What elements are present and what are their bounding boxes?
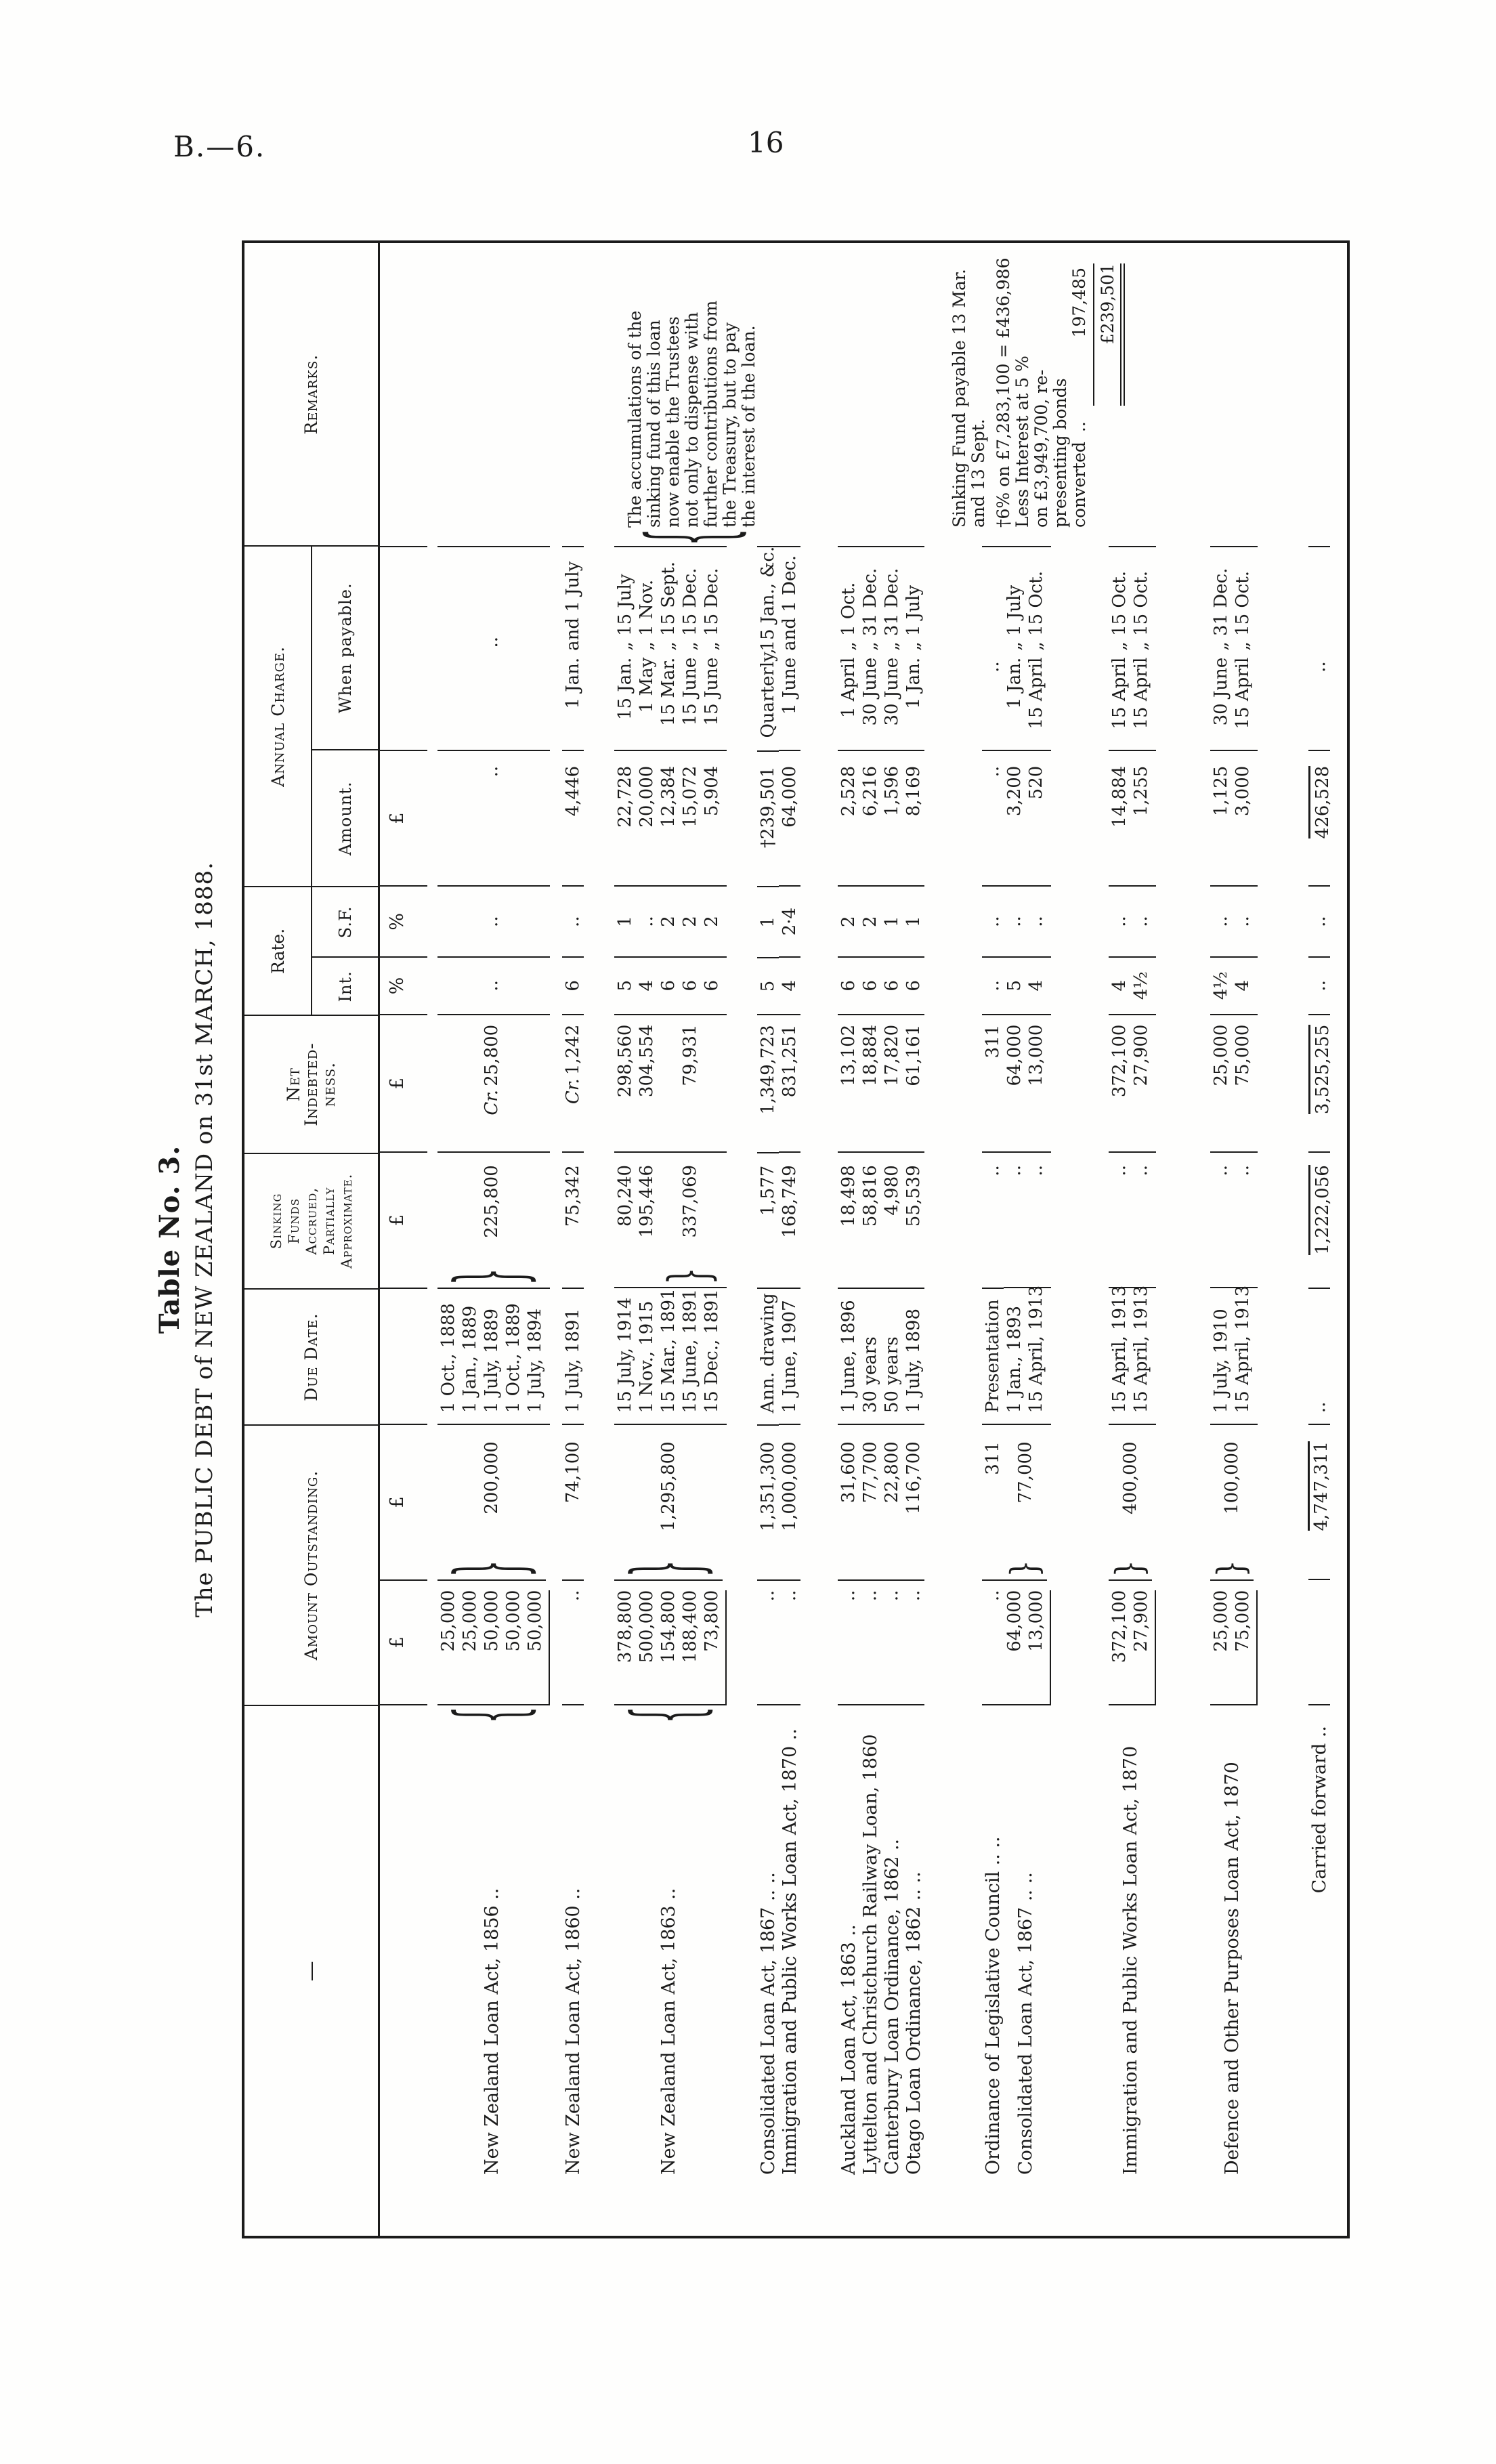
due-date-cell: 15 April, 191315 April, 1913 — [1109, 1288, 1156, 1425]
remarks-cell — [982, 243, 1004, 547]
when-payable-entry: 15 Mar.„ 15 Sept. — [658, 547, 679, 738]
net-indebtedness-value: 61,161 — [903, 1025, 924, 1151]
rate-int-value: 4 — [779, 958, 800, 1014]
due-date-cell: .. — [1308, 1289, 1330, 1425]
rate-sf-value: 2 — [838, 887, 859, 956]
loan-name: Immigration and Public Works Loan Act, 1… — [1120, 1746, 1141, 2175]
when-payable-entry: 15 April„ 15 Oct. — [1109, 547, 1130, 738]
amount-outstanding-total: 31,600 — [838, 1441, 859, 1503]
sinking-fund-value: 58,816 — [859, 1165, 881, 1287]
loan-name-cell: Lyttelton and Christchurch Railway Loan,… — [859, 1705, 881, 2236]
when-payable-first: 15 June — [701, 658, 723, 738]
brace-right-icon: } — [1214, 1560, 1250, 1577]
rate-sf-value: .. — [636, 887, 658, 956]
rate-sf-value: .. — [1109, 887, 1130, 956]
sinking-fund-value: .. — [982, 1165, 1004, 1287]
annual-amount-value: 8,169 — [903, 766, 924, 885]
due-date: 1 June, 1896 — [838, 1289, 859, 1413]
rate-sf-value: 2·4 — [779, 887, 800, 956]
itemised-amount: 50,000 — [503, 1590, 524, 1705]
group-sum-rule — [1155, 1590, 1156, 1704]
annual-amount-cell: 426,528 — [1308, 751, 1330, 887]
loan-name: Canterbury Loan Ordinance, 1862 .. — [882, 1839, 903, 2175]
due-date-cell: Presentation — [982, 1289, 1004, 1425]
when-payable-entry: 15 April„ 15 Oct. — [1130, 547, 1152, 738]
rate-int-cell: 4½4 — [1210, 958, 1258, 1015]
due-date: Presentation — [982, 1289, 1004, 1413]
remark-sum-label: converted — [1070, 442, 1089, 528]
sinking-fund-value: 18,498 — [838, 1165, 859, 1287]
itemised-amount: .. — [757, 1590, 779, 1704]
itemised-amount: 188,400 — [679, 1590, 701, 1704]
amount-outstanding-total-cell: 200,000} — [437, 1425, 546, 1580]
loan-name-cell: Defence and Other Purposes Loan Act, 187… — [1210, 1705, 1254, 2236]
due-date: 15 Dec., 1891 — [701, 1288, 723, 1413]
remark-line: the interest of the loan. — [740, 247, 758, 528]
loan-name-cell: Carried forward .. — [1308, 1705, 1330, 2236]
net-indebtedness-value: 831,251 — [779, 1025, 800, 1151]
due-date: 1 July, 1889 — [481, 1289, 503, 1413]
loan-name: Lyttelton and Christchurch Railway Loan,… — [860, 1734, 881, 2175]
net-indebtedness-cell: 18,884 — [859, 1015, 881, 1153]
net-indebtedness-cell: 61,161 — [903, 1015, 924, 1153]
itemised-amounts-cell: 25,00025,00050,00050,00050,000 — [437, 1581, 550, 1706]
when-payable-first: 30 June — [881, 658, 903, 738]
header-annual-charge: Annual Charge. — [244, 547, 312, 886]
annual-amount-value: 3,000 — [1232, 766, 1254, 885]
amount-outstanding-total: 1,000,000 — [779, 1441, 800, 1531]
loan-row: Carried forward ..4,747,311..1,222,0563,… — [1308, 243, 1330, 2236]
when-payable-entry: Quarterly,15 Jan., &c. — [757, 547, 779, 738]
rate-int-cell: .. — [437, 958, 550, 1015]
rate-sf-value: .. — [1308, 887, 1330, 956]
loan-name: Otago Loan Ordinance, 1862 .. .. — [903, 1871, 924, 2175]
when-payable-cell: 1 Jan.„ 1 July — [903, 547, 924, 751]
header-rate-group: Rate. Int. S.F. — [244, 887, 378, 1016]
due-date: 1 July, 1891 — [562, 1289, 584, 1413]
loan-name-cell: Consolidated Loan Act, 1867 .. .. — [1004, 1705, 1047, 2236]
net-indebtedness-value: 18,884 — [859, 1025, 881, 1151]
annual-amount-value: 22,728 — [614, 766, 636, 885]
when-payable-second: 15 Jan., &c. — [757, 547, 779, 652]
when-payable-second: „ 15 July — [614, 574, 636, 650]
unit-total-pound: £ — [380, 1425, 427, 1580]
amount-outstanding-total-cell: 1,351,300 — [757, 1426, 779, 1581]
net-indebtedness-value: 64,000 — [1004, 1025, 1025, 1151]
itemised-amount: 25,000 — [437, 1590, 459, 1705]
group-sum-rule — [1050, 1590, 1051, 1704]
net-indebtedness-value: 75,000 — [1232, 1025, 1254, 1151]
sinking-funds-cell: 75,342 — [562, 1153, 584, 1288]
sinking-funds-cell: 225,800} — [437, 1153, 550, 1288]
loan-name: New Zealand Loan Act, 1856 .. — [482, 1888, 503, 2175]
itemised-amount: 25,000 — [459, 1590, 481, 1705]
annual-amount-cell: 22,72820,00012,38415,0725,904 — [614, 751, 727, 887]
when-payable-first: 15 Mar. — [658, 658, 679, 738]
itemised-amounts-cell: 372,10027,900 — [1109, 1581, 1156, 1705]
loan-name-cell: Immigration and Public Works Loan Act, 1… — [1109, 1705, 1152, 2236]
annual-amount-value: 14,884 — [1109, 766, 1130, 885]
rate-int-value: 4 — [636, 958, 658, 1014]
itemised-amount: 25,000 — [1210, 1590, 1232, 1704]
itemised-amounts-cell: .. — [838, 1581, 859, 1706]
when-payable-second: and 1 July — [562, 561, 584, 651]
sinking-funds-cell: .... — [1004, 1153, 1051, 1288]
remarks-cell — [838, 243, 859, 547]
rate-sf-value: 2 — [679, 887, 701, 956]
rate-sf-value: .. — [1130, 887, 1152, 956]
sinking-funds-cell: 1,577 — [757, 1153, 779, 1289]
rate-sf-cell: .... — [1210, 887, 1258, 958]
sinking-fund-value: 168,749 — [779, 1165, 800, 1287]
amount-outstanding-total: 200,000 — [482, 1441, 502, 1514]
annual-amount-value: 20,000 — [636, 766, 658, 885]
rate-int-cell: 6 — [903, 958, 924, 1015]
remark-sum-line: converted..197,485 — [1070, 247, 1089, 528]
rate-int-value: 4 — [1025, 958, 1047, 1014]
when-payable-cell: 1 Jan.and 1 July — [562, 547, 584, 751]
itemised-amount: .. — [982, 1590, 1004, 1705]
rate-int-cell: 6 — [859, 958, 881, 1015]
group-sum-rule — [1256, 1590, 1258, 1704]
amount-outstanding-total-cell: 100,000} — [1210, 1425, 1254, 1580]
amount-outstanding-total-cell: 31,600 — [838, 1425, 859, 1580]
header-annual-charge-group: Annual Charge. Amount. When payable. — [244, 547, 378, 887]
when-payable-entry: 15 April„ 15 Oct. — [1232, 547, 1254, 738]
rate-sf-cell: 1..222 — [614, 887, 727, 958]
sinking-funds-cell: 55,539 — [903, 1153, 924, 1288]
sinking-fund-group-value: 225,800} — [437, 1165, 546, 1287]
itemised-amounts-cell: .. — [562, 1581, 584, 1706]
net-indebtedness-value: 372,100 — [1109, 1025, 1130, 1151]
rate-int-cell: 54666 — [614, 958, 727, 1015]
sinking-funds-cell: 80,240195,446337,069} — [614, 1153, 727, 1288]
rate-int-cell: .. — [982, 958, 1004, 1015]
sinking-funds-cell: 168,749 — [779, 1153, 800, 1288]
itemised-amount: .. — [881, 1590, 903, 1705]
loan-name: Consolidated Loan Act, 1867 .. .. — [758, 1872, 779, 2175]
brace-left-icon: { — [622, 1707, 714, 1724]
loan-name: Auckland Loan Act, 1863 .. — [838, 1924, 859, 2175]
when-payable-cell: 30 June„ 31 Dec. — [859, 547, 881, 751]
brace-right-icon: } — [662, 1268, 717, 1285]
when-payable-second: „ 15 Oct. — [1109, 571, 1130, 651]
due-date: 1 July, 1910 — [1210, 1288, 1232, 1413]
itemised-amounts-cell: 378,800500,000154,800188,40073,800 — [614, 1581, 727, 1705]
unit-sinking-pound: £ — [380, 1153, 427, 1288]
when-payable-cell: 30 June„ 31 Dec. — [881, 547, 903, 751]
remarks-cell — [903, 243, 924, 547]
rate-int-cell: 6 — [838, 958, 859, 1015]
sinking-fund-value: 195,446 — [636, 1165, 658, 1287]
when-payable-cell: 15 Jan.„ 15 July1 May„ 1 Nov.15 Mar.„ 15… — [614, 547, 727, 751]
sinking-fund-group-value: 337,069} — [658, 1165, 723, 1287]
loan-row: Otago Loan Ordinance, 1862 .. ....116,70… — [903, 243, 924, 2236]
when-payable-entry: 1 Jan.„ 1 July — [1004, 547, 1025, 738]
rate-sf-cell: 2 — [838, 887, 859, 958]
rate-sf-value: 2 — [658, 887, 679, 956]
group-sum-rule — [725, 1590, 727, 1704]
net-indebtedness-cell: 1,349,723 — [757, 1015, 779, 1153]
header-rate: Rate. — [244, 887, 312, 1015]
loan-name-cell: New Zealand Loan Act, 1863 ..{ — [614, 1705, 723, 2236]
net-indebtedness-group-value: 79,931 — [658, 1025, 723, 1151]
remarks-cell — [1109, 243, 1156, 547]
due-date: 1 Jan., 1889 — [459, 1289, 481, 1413]
net-indebtedness-cell: 64,00013,000 — [1004, 1015, 1051, 1153]
brace-left-icon: { — [446, 1706, 538, 1723]
when-payable-entry: 1 April„ 1 Oct. — [838, 547, 859, 738]
itemised-amount: 378,800 — [614, 1590, 636, 1704]
when-payable-second: „ 1 Oct. — [838, 582, 859, 651]
header-name-column: — — [244, 1706, 378, 2236]
rate-sf-value: 2 — [701, 887, 723, 956]
when-payable-entry: 30 June„ 31 Dec. — [859, 547, 881, 738]
rate-sf-value: 1 — [614, 887, 636, 956]
when-payable-second: „ 31 Dec. — [881, 568, 903, 651]
when-payable-first: 1 Jan. — [1004, 658, 1025, 738]
rate-int-value: 6 — [562, 958, 584, 1014]
amount-outstanding-total-cell: 77,700 — [859, 1425, 881, 1580]
loan-name-cell: Consolidated Loan Act, 1867 .. .. — [757, 1705, 779, 2236]
header-net-indebtedness: Net Indebted- ness. — [244, 1016, 378, 1153]
itemised-amount: 13,000 — [1025, 1590, 1047, 1704]
rate-int-value: 4 — [1232, 958, 1254, 1014]
rate-int-value: 6 — [838, 958, 859, 1014]
amount-outstanding-total: 4,747,311 — [1308, 1441, 1331, 1531]
when-payable-entry: 15 Jan.„ 15 July — [614, 547, 636, 738]
annual-amount-value: .. — [982, 766, 1004, 885]
due-date: 1 June, 1907 — [779, 1289, 800, 1413]
annual-amount-value: 520 — [1025, 766, 1047, 885]
itemised-amount: .. — [562, 1590, 584, 1705]
itemised-amounts-cell: .. — [779, 1581, 800, 1706]
when-payable-second: and 1 Dec. — [779, 555, 800, 651]
loan-row: Ordinance of Legislative Council .. ....… — [982, 243, 1004, 2236]
annual-amount-value: 15,072 — [679, 766, 701, 885]
loan-row: Immigration and Public Works Loan Act, 1… — [1109, 243, 1156, 2236]
remarks-cell — [881, 243, 903, 547]
rotated-table-region: Table No. 3. The PUBLIC DEBT of NEW ZEAL… — [154, 240, 1350, 2238]
rate-int-value: 4½ — [1210, 958, 1232, 1014]
net-indebtedness-cell: 3,525,255 — [1308, 1015, 1330, 1153]
annual-amount-cell: .. — [982, 751, 1004, 887]
rate-int-cell: 54 — [1004, 958, 1051, 1015]
when-payable-second: „ 15 Oct. — [1025, 571, 1047, 651]
itemised-amounts-cell: .. — [859, 1581, 881, 1706]
rate-int-value: 5 — [1004, 958, 1025, 1014]
loan-row: New Zealand Loan Act, 1860 ....74,1001 J… — [562, 243, 584, 2236]
rate-int-value: 6 — [658, 958, 679, 1014]
table-subtitle: The PUBLIC DEBT of NEW ZEALAND on 31st M… — [191, 240, 218, 2238]
net-indebtedness-value: 1,349,723 — [757, 1025, 779, 1151]
itemised-amounts-cell: .. — [881, 1581, 903, 1706]
when-payable-second: „ 1 July — [903, 585, 924, 651]
sinking-fund-value: 55,539 — [903, 1165, 924, 1287]
when-payable-first: 15 April — [1109, 658, 1130, 738]
sinking-fund-value: .. — [1130, 1165, 1152, 1287]
rate-sf-cell: .... — [1004, 887, 1051, 958]
when-payable-entry: 1 Juneand 1 Dec. — [779, 547, 800, 738]
itemised-amounts-cell: .. — [903, 1581, 924, 1706]
due-date: 1 July, 1894 — [524, 1289, 546, 1413]
when-payable-first: 1 Jan. — [903, 658, 924, 738]
header-rate-int: Int. — [312, 958, 378, 1015]
amount-outstanding-total-cell: 1,295,800} — [614, 1425, 723, 1580]
due-date-cell: 1 Oct., 18881 Jan., 18891 July, 18891 Oc… — [437, 1289, 550, 1425]
page-number: 16 — [748, 126, 784, 159]
unit-itemised-pound: £ — [380, 1581, 427, 1706]
due-date: 15 Mar., 1891 — [658, 1288, 679, 1413]
itemised-amount: 154,800 — [658, 1590, 679, 1704]
when-payable-first: 15 April — [1025, 658, 1047, 738]
sinking-funds-cell: 58,816 — [859, 1153, 881, 1288]
rate-sf-value: .. — [562, 887, 584, 956]
rate-sf-value: .. — [437, 887, 546, 956]
amount-outstanding-total-cell: 4,747,311 — [1308, 1425, 1330, 1580]
annual-amount-value: 5,904 — [701, 766, 723, 885]
amount-outstanding-total: 74,100 — [563, 1441, 583, 1503]
when-payable-cell: 1 Jan.„ 1 July15 April„ 15 Oct. — [1004, 547, 1051, 751]
remark-line: Sinking Fund payable 13 Mar. — [950, 247, 969, 528]
rate-sf-cell: .. — [982, 887, 1004, 958]
when-payable-entry: 30 June„ 31 Dec. — [1210, 547, 1232, 738]
due-date: 15 July, 1914 — [614, 1288, 636, 1413]
loan-name-cell: New Zealand Loan Act, 1860 .. — [562, 1705, 584, 2236]
rate-sf-cell: 2 — [859, 887, 881, 958]
sinking-fund-value: .. — [1109, 1165, 1130, 1287]
itemised-amount: 50,000 — [481, 1590, 503, 1705]
table-header-row: — Amount Outstanding. Due Date. Sinking … — [244, 243, 380, 2236]
when-payable-entry: 1 Jan.and 1 July — [562, 547, 584, 738]
when-payable-entry: 15 June„ 15 Dec. — [679, 547, 701, 738]
annual-amount-value: 3,200 — [1004, 766, 1025, 885]
net-indebtedness-value: 311 — [982, 1025, 1004, 1151]
rate-sf-value: 1 — [881, 887, 903, 956]
loan-row: New Zealand Loan Act, 1863 ..{378,800500… — [614, 243, 727, 2236]
rate-sf-value: .. — [1004, 887, 1025, 956]
when-payable-first: 1 June — [779, 658, 800, 738]
due-date: 1 Oct., 1889 — [503, 1289, 524, 1413]
annual-amount-cell: 4,446 — [562, 751, 584, 887]
due-date-cell: 30 years — [859, 1289, 881, 1425]
rate-int-value: 6 — [859, 958, 881, 1014]
rate-int-value: 6 — [679, 958, 701, 1014]
when-payable-entry: .. — [437, 547, 546, 738]
when-payable-entry: 30 June„ 31 Dec. — [881, 547, 903, 738]
header-sinking-funds: Sinking Funds Accrued, Partially Approxi… — [244, 1154, 378, 1290]
sinking-fund-value: .. — [1232, 1165, 1254, 1287]
remarks-cell — [437, 243, 550, 547]
rate-sf-cell: 2·4 — [779, 887, 800, 958]
when-payable-cell: Quarterly,15 Jan., &c. — [757, 547, 779, 752]
header-remarks: Remarks. — [244, 243, 378, 547]
header-rate-sf: S.F. — [312, 887, 378, 958]
header-due-date: Due Date. — [244, 1290, 378, 1426]
rate-sf-cell: .. — [437, 887, 550, 958]
rate-sf-cell: 1 — [757, 887, 779, 958]
due-date-cell: 1 June, 1896 — [838, 1289, 859, 1425]
sinking-fund-value: 4,980 — [881, 1165, 903, 1287]
due-date-cell: Ann. drawing — [757, 1289, 779, 1425]
annual-amount-value: †239,501 — [757, 767, 779, 886]
due-date-cell: 1 June, 1907 — [779, 1289, 800, 1425]
annual-amount-value: 1,255 — [1130, 766, 1152, 885]
remarks-cell — [614, 243, 727, 547]
loan-row: Canterbury Loan Ordinance, 1862 ....22,8… — [881, 243, 903, 2236]
when-payable-first: 15 Jan. — [614, 658, 636, 738]
when-payable-first: 1 April — [838, 658, 859, 738]
itemised-amounts-cell: 25,00075,000 — [1210, 1581, 1258, 1705]
rate-int-value: 4½ — [1130, 958, 1152, 1014]
annual-amount-value: 426,528 — [1308, 766, 1333, 839]
annual-amount-cell: †239,501 — [757, 752, 779, 887]
when-payable-second: „ 15 Sept. — [658, 561, 679, 651]
due-date-cell: 1 Jan., 189315 April, 1913 — [1004, 1288, 1051, 1425]
sinking-fund-value: .. — [1210, 1165, 1232, 1287]
itemised-amount: 500,000 — [636, 1590, 658, 1704]
annual-amount-value: 6,216 — [859, 766, 881, 885]
loan-name-cell: Immigration and Public Works Loan Act, 1… — [779, 1705, 800, 2236]
loan-name-cell: Canterbury Loan Ordinance, 1862 .. — [881, 1705, 903, 2236]
due-date-cell: 1 July, 1891 — [562, 1289, 584, 1425]
amount-outstanding-total: 100,000 — [1222, 1441, 1242, 1514]
itemised-amounts-cell: .. — [757, 1581, 779, 1705]
annual-amount-value: 2,528 — [838, 766, 859, 885]
net-indebtedness-value: 13,000 — [1025, 1025, 1047, 1151]
due-date: Ann. drawing — [757, 1289, 779, 1413]
amount-outstanding-total: 1,351,300 — [758, 1442, 778, 1531]
when-payable-first: 30 June — [859, 658, 881, 738]
rate-int-value: .. — [982, 958, 1004, 1014]
when-payable-entry: 1 May„ 1 Nov. — [636, 547, 658, 738]
rate-int-value: 5 — [614, 958, 636, 1014]
amount-outstanding-total: 77,700 — [860, 1441, 880, 1503]
rate-sf-cell: 1 — [881, 887, 903, 958]
loan-name: Consolidated Loan Act, 1867 .. .. — [1015, 1872, 1036, 2175]
annual-amount-value: 1,125 — [1210, 766, 1232, 885]
sinking-fund-value: 1,222,056 — [1308, 1165, 1333, 1254]
table-body: {The accumulations of thesinking fund of… — [437, 243, 1357, 2236]
sinking-fund-value: 1,577 — [757, 1166, 779, 1288]
rate-int-cell: 5 — [757, 958, 779, 1016]
when-payable-second: „ 15 Oct. — [1130, 571, 1152, 651]
amount-outstanding-total-cell: 311 — [982, 1425, 1004, 1580]
unit-amount-pound: £ — [380, 751, 427, 887]
net-indebtedness-cell: 311 — [982, 1015, 1004, 1153]
itemised-amounts-cell: 64,00013,000 — [1004, 1581, 1051, 1705]
table-number-title: Table No. 3. — [154, 240, 186, 2238]
amt-line: 426,528 — [1308, 766, 1330, 885]
loan-row: Lyttelton and Christchurch Railway Loan,… — [859, 243, 881, 2236]
unit-sf-percent: % — [380, 887, 427, 958]
due-date: 30 years — [859, 1289, 881, 1413]
amount-outstanding-total-cell: 74,100 — [562, 1425, 584, 1580]
rate-int-cell: .. — [1308, 958, 1330, 1015]
itemised-amount: 372,100 — [1109, 1590, 1130, 1704]
net-indebtedness-cell: 25,00075,000 — [1210, 1015, 1258, 1153]
annual-amount-value: 12,384 — [658, 766, 679, 885]
amount-outstanding-total-cell: 77,000} — [1004, 1425, 1047, 1580]
sinking-fund-value: 80,240 — [614, 1165, 636, 1287]
remarks-cell — [1210, 243, 1258, 547]
when-payable-second: „ 15 Dec. — [701, 568, 723, 651]
sinking-funds-cell: 4,980 — [881, 1153, 903, 1288]
remark-sum-dots: .. — [1070, 421, 1089, 432]
header-when-payable: When payable. — [312, 547, 378, 750]
remarks-cell — [859, 243, 881, 547]
rate-int-value: 6 — [903, 958, 924, 1014]
